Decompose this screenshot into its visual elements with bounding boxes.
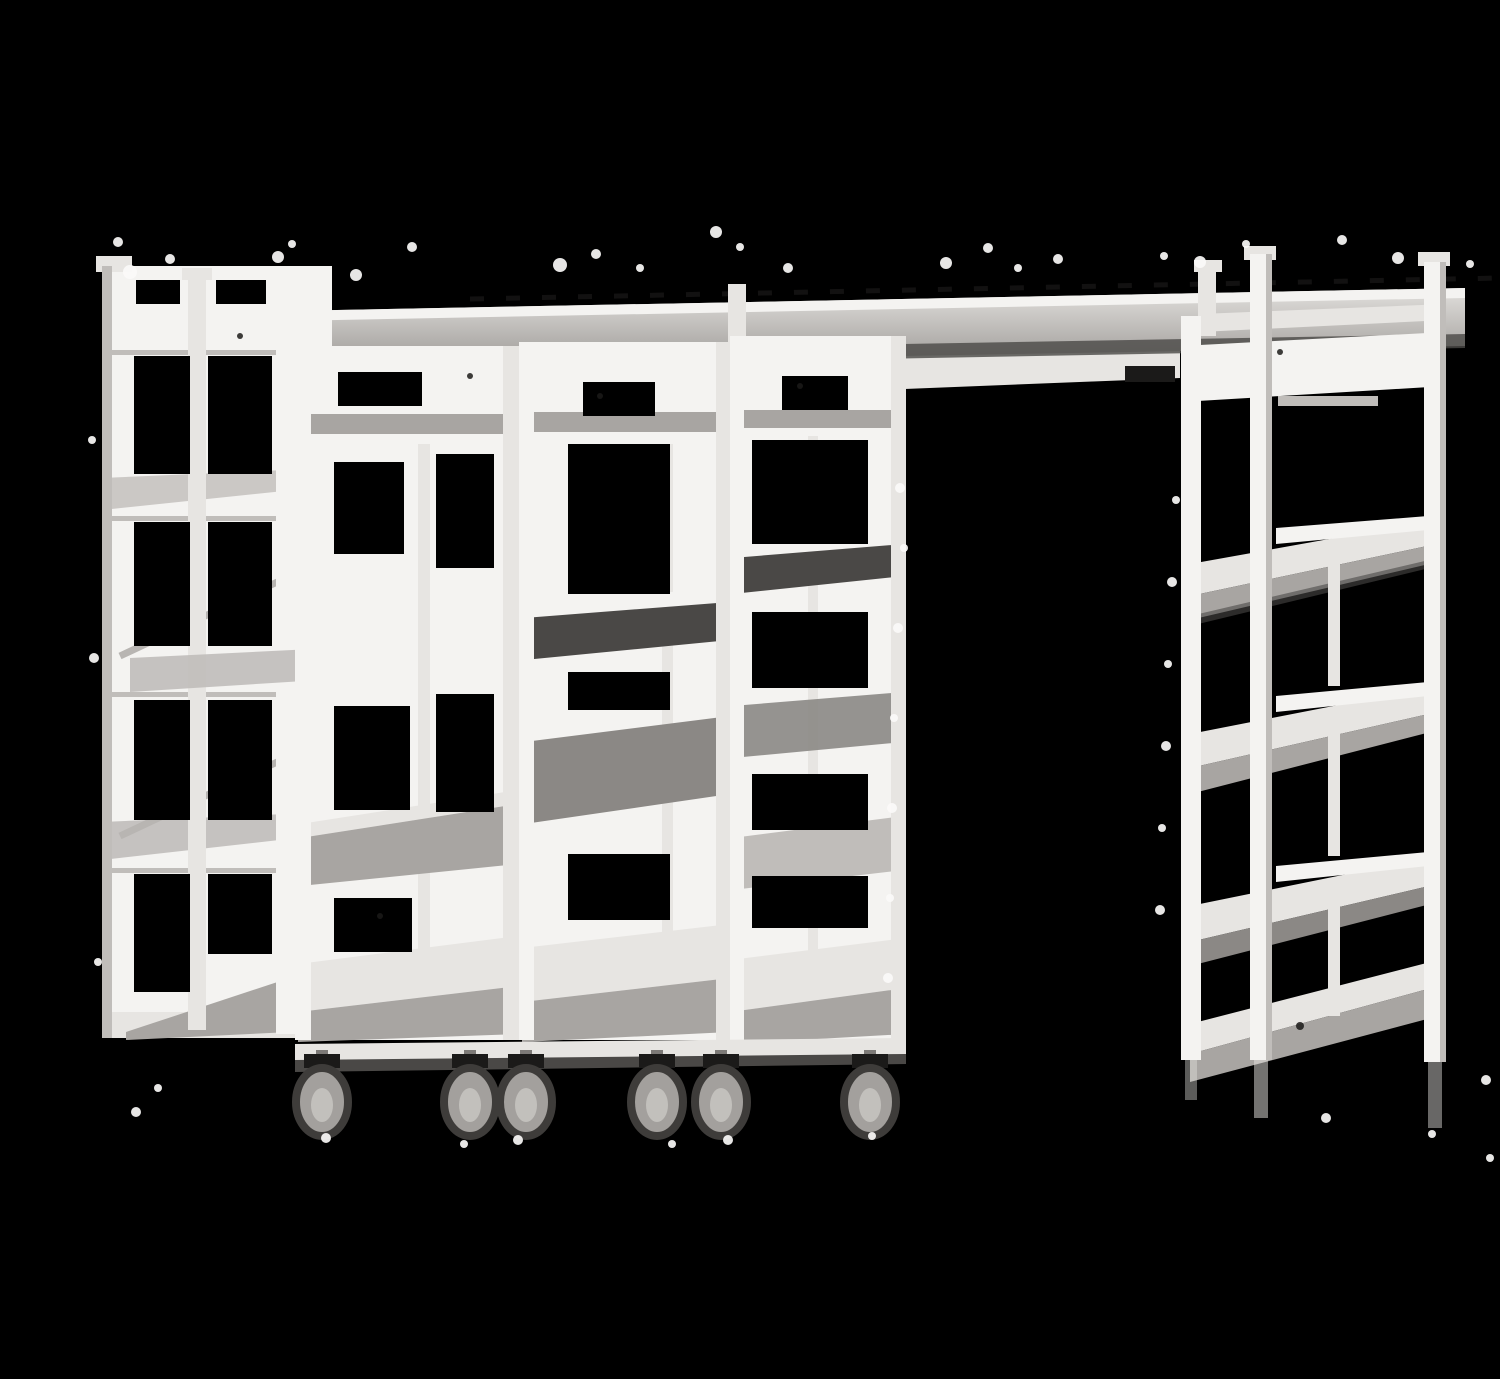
upright-post xyxy=(730,336,744,1042)
shelf-opening xyxy=(436,454,494,568)
shelf-opening xyxy=(782,376,848,410)
shelf-opening xyxy=(752,440,868,544)
mobile-cart-1 xyxy=(295,346,519,1042)
header-divider xyxy=(730,410,906,428)
post-shade xyxy=(1440,262,1446,1062)
inner-mullion xyxy=(1328,556,1340,686)
shelf-opening xyxy=(568,854,670,920)
post-fade xyxy=(1254,1060,1268,1118)
post-fade xyxy=(1428,1062,1442,1128)
post-shade xyxy=(1266,254,1272,1060)
post-shade xyxy=(102,266,112,1038)
shelf-opening xyxy=(752,774,868,830)
shelf-opening xyxy=(208,522,272,646)
header-divider xyxy=(295,414,519,434)
cart-riser-post xyxy=(728,284,746,342)
shelf-edge-line xyxy=(1278,396,1378,406)
shelf-opening xyxy=(208,356,272,474)
inner-mullion xyxy=(1328,728,1340,856)
shelving-system-photo xyxy=(40,16,1500,1363)
shelf-opening xyxy=(208,700,272,820)
shelf-opening xyxy=(338,372,422,406)
shelf-opening xyxy=(134,874,190,992)
shelf-opening xyxy=(568,672,670,710)
upright-post xyxy=(1181,316,1201,1060)
upright-post xyxy=(519,342,534,1040)
post-fade xyxy=(1185,1060,1197,1100)
shelf-opening xyxy=(208,874,272,954)
inner-mullion xyxy=(418,444,430,1018)
shelf-opening xyxy=(334,462,404,554)
shelf-opening xyxy=(752,876,868,928)
shelf-opening xyxy=(216,280,266,304)
upright-post xyxy=(503,346,519,1040)
shelf-opening xyxy=(752,612,868,688)
shelf-opening xyxy=(568,444,670,594)
shelf-opening xyxy=(583,382,655,416)
shelf-opening xyxy=(436,694,494,812)
upright-post xyxy=(188,278,206,1030)
shelf-opening xyxy=(136,280,180,304)
shelf-opening xyxy=(134,700,190,820)
upright-post xyxy=(295,346,311,1040)
mobile-cart-3 xyxy=(728,284,906,1044)
shelf-opening xyxy=(334,706,410,810)
inner-mullion xyxy=(1328,900,1340,1016)
dark-accent-bar xyxy=(1125,366,1175,382)
mobile-cart-2 xyxy=(519,342,731,1042)
upright-post xyxy=(716,342,731,1040)
shelf-opening xyxy=(134,356,190,474)
shelf-opening xyxy=(334,898,412,952)
shelf-opening xyxy=(134,522,190,646)
upright-post xyxy=(891,336,906,1042)
